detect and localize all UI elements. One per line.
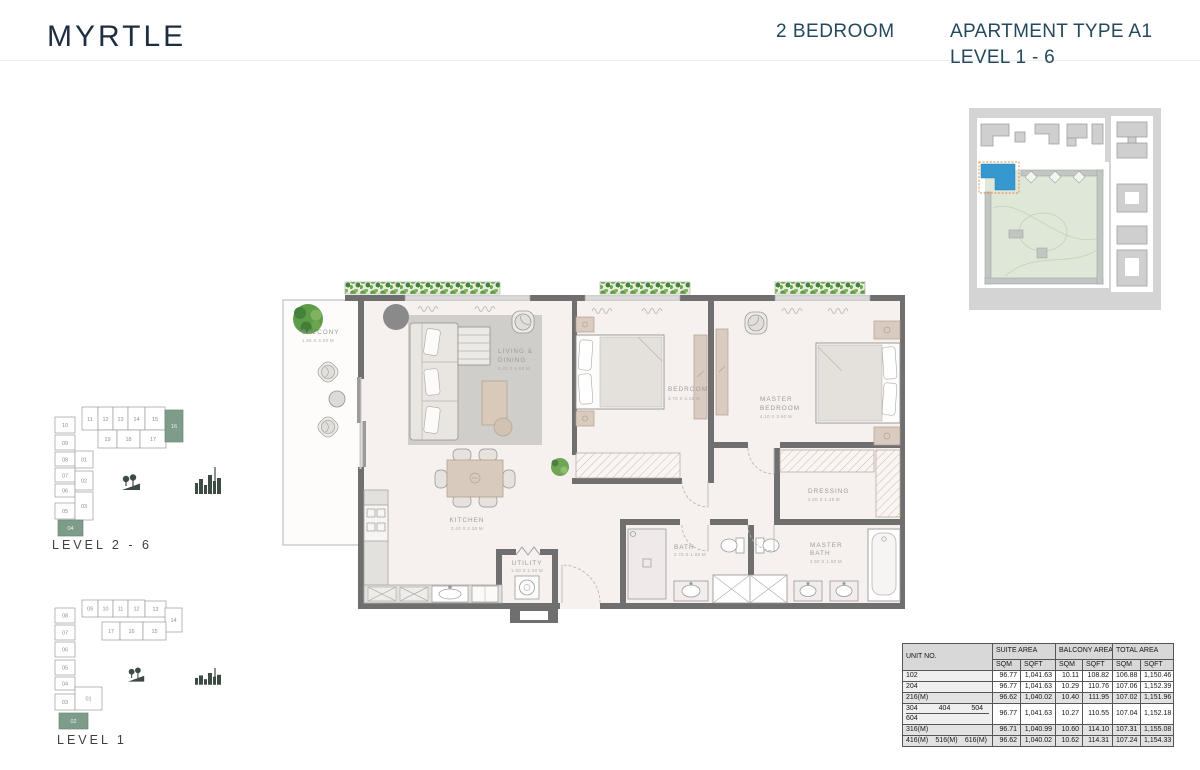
subheader-sqm: SQM	[1113, 660, 1141, 671]
room-label-masterbath-2: BATH	[810, 550, 831, 557]
col-header-unit: UNIT NO.	[903, 644, 993, 671]
balcony-table	[329, 391, 345, 407]
room-label-kitchen: KITCHEN	[449, 517, 484, 524]
area-table: UNIT NO. SUITE AREA BALCONY AREA TOTAL A…	[902, 643, 1174, 747]
table-row: 304 404 504 604 96.771,041.63 10.27110.5…	[903, 704, 1174, 725]
unit-number: 06	[62, 489, 68, 495]
bathtub-icon	[868, 529, 900, 601]
table-row: 416(M) 516(M) 616(M) 96.621,040.02 10.62…	[903, 736, 1174, 747]
room-dims-kitchen: 3.40 X 2.20 M	[451, 526, 483, 531]
room-label-utility: UTILITY	[512, 560, 543, 567]
side-stool	[494, 418, 512, 436]
unit-number-highlight: 02	[70, 719, 76, 725]
page-title: MYRTLE	[47, 20, 186, 54]
room-dims-masterbath: 2.50 X 1.80 M	[810, 559, 842, 564]
unit-number: 13	[152, 607, 158, 613]
unit-number: 08	[62, 614, 68, 620]
unit-number: 03	[81, 504, 87, 510]
key-plan-level-2-6: 10 09 08 07 06 05 04 01 02 03 11 12 13 1…	[40, 390, 250, 540]
living-plant-pot	[383, 304, 409, 330]
unit-number: 10	[62, 423, 68, 429]
keyplan-label-level-2-6: LEVEL 2 - 6	[52, 538, 152, 552]
floor-plant	[551, 458, 569, 476]
unit-number: 01	[85, 697, 91, 703]
skyline-icon	[195, 467, 221, 494]
table-row: 102 96.771,041.63 10.11108.82 106.881,15…	[903, 671, 1174, 682]
bedroom-bed	[576, 335, 664, 409]
unit-number: 11	[118, 607, 124, 613]
master-built-in-wardrobe	[716, 329, 728, 415]
unit-number: 19	[104, 437, 110, 443]
room-label-masterbath-1: MASTER	[810, 542, 843, 549]
washing-machine-icon	[515, 576, 539, 599]
unit-number: 12	[133, 607, 139, 613]
unit-number: 15	[152, 417, 158, 423]
unit-number: 05	[62, 509, 68, 515]
park-icon	[122, 474, 140, 490]
col-header-suite: SUITE AREA	[993, 644, 1056, 660]
room-label-master-2: BEDROOM	[760, 405, 800, 412]
unit-number: 14	[170, 618, 176, 624]
apartment-type-block: APARTMENT TYPE A1 LEVEL 1 - 6	[950, 19, 1152, 71]
unit-number: 06	[62, 648, 68, 654]
planter-boxes	[345, 282, 865, 294]
park-icon	[128, 667, 144, 681]
windows	[405, 296, 870, 300]
unit-number-highlight: 16	[171, 424, 177, 430]
master-bed	[816, 343, 900, 423]
unit-number: 03	[62, 700, 68, 706]
room-dims-bedroom: 3.70 X 4.15 M	[668, 396, 700, 401]
unit-number: 01	[81, 458, 87, 464]
room-label-living-1: LIVING &	[498, 348, 533, 355]
unit-number: 02	[81, 479, 87, 485]
subheader-sqm: SQM	[1056, 660, 1083, 671]
unit-number: 08	[62, 458, 68, 464]
room-dims-living: 5.20 X 4.55 M	[498, 366, 530, 371]
room-label-balcony: BALCONY	[302, 329, 340, 336]
room-label-dressing: DRESSING	[808, 488, 849, 495]
room-dims-utility: 1.30 X 1.00 M	[511, 568, 543, 573]
room-dims-balcony: 1.55 X 4.00 M	[302, 338, 334, 343]
unit-number: 05	[62, 666, 68, 672]
subheader-sqft: SQFT	[1021, 660, 1056, 671]
room-label-master-1: MASTER	[760, 396, 793, 403]
apartment-type-label: APARTMENT TYPE A1	[950, 19, 1152, 45]
site-buildings-right	[1117, 122, 1147, 286]
unit-number: 09	[62, 441, 68, 447]
unit-number: 16	[128, 629, 134, 635]
keyplan-label-level-1: LEVEL 1	[57, 733, 127, 747]
unit-number: 13	[117, 417, 123, 423]
subheader-sqft: SQFT	[1141, 660, 1174, 671]
subheader-sqft: SQFT	[1083, 660, 1113, 671]
room-dims-bath: 2.70 X 1.80 M	[674, 552, 706, 557]
unit-number: 17	[108, 629, 114, 635]
toilet-icon	[721, 538, 744, 553]
unit-number: 04	[62, 682, 68, 688]
key-plan-level-1: 09 10 11 12 13 14 17 16 15 08 07 06 05 0…	[40, 595, 250, 745]
unit-number: 09	[87, 607, 93, 613]
room-dims-dressing: 2.60 X 1.45 M	[808, 497, 840, 502]
toilet-icon	[756, 538, 779, 553]
unit-number: 10	[102, 607, 108, 613]
col-header-total: TOTAL AREA	[1113, 644, 1174, 660]
room-dims-master: 4.10 X 3.60 M	[760, 414, 792, 419]
level-range-label: LEVEL 1 - 6	[950, 45, 1152, 71]
col-header-balcony: BALCONY AREA	[1056, 644, 1113, 660]
floor-plan: BALCONY 1.55 X 4.00 M LIVING & DINING 5.…	[270, 277, 910, 627]
table-row: 204 96.771,041.63 10.29110.76 107.061,15…	[903, 682, 1174, 693]
skyline-icon	[195, 668, 221, 685]
unit-number: 15	[151, 629, 157, 635]
table-row: 316(M) 96.711,040.99 10.60114.10 107.311…	[903, 725, 1174, 736]
table-row: 216(M) 96.621,040.02 10.40111.95 107.021…	[903, 693, 1174, 704]
entrance-step	[520, 611, 548, 620]
room-label-living-2: DINING	[498, 357, 526, 364]
unit-number: 07	[62, 631, 68, 637]
subheader-sqm: SQM	[993, 660, 1021, 671]
unit-number: 18	[125, 437, 131, 443]
unit-number-highlight: 04	[67, 526, 73, 532]
unit-number: 17	[150, 437, 156, 443]
brochure-page: MYRTLE 2 BEDROOM APARTMENT TYPE A1 LEVEL…	[0, 0, 1200, 770]
bedroom-type-label: 2 BEDROOM	[776, 21, 895, 43]
hall-closet	[713, 575, 787, 603]
unit-number: 12	[102, 417, 108, 423]
unit-number: 11	[87, 417, 93, 423]
unit-number: 07	[62, 474, 68, 480]
unit-number: 14	[133, 417, 139, 423]
site-plan	[965, 100, 1165, 318]
room-label-bedroom: BEDROOM	[668, 386, 708, 393]
bedroom-built-in-wardrobe	[694, 335, 707, 419]
room-label-bath: BATH	[674, 544, 695, 551]
